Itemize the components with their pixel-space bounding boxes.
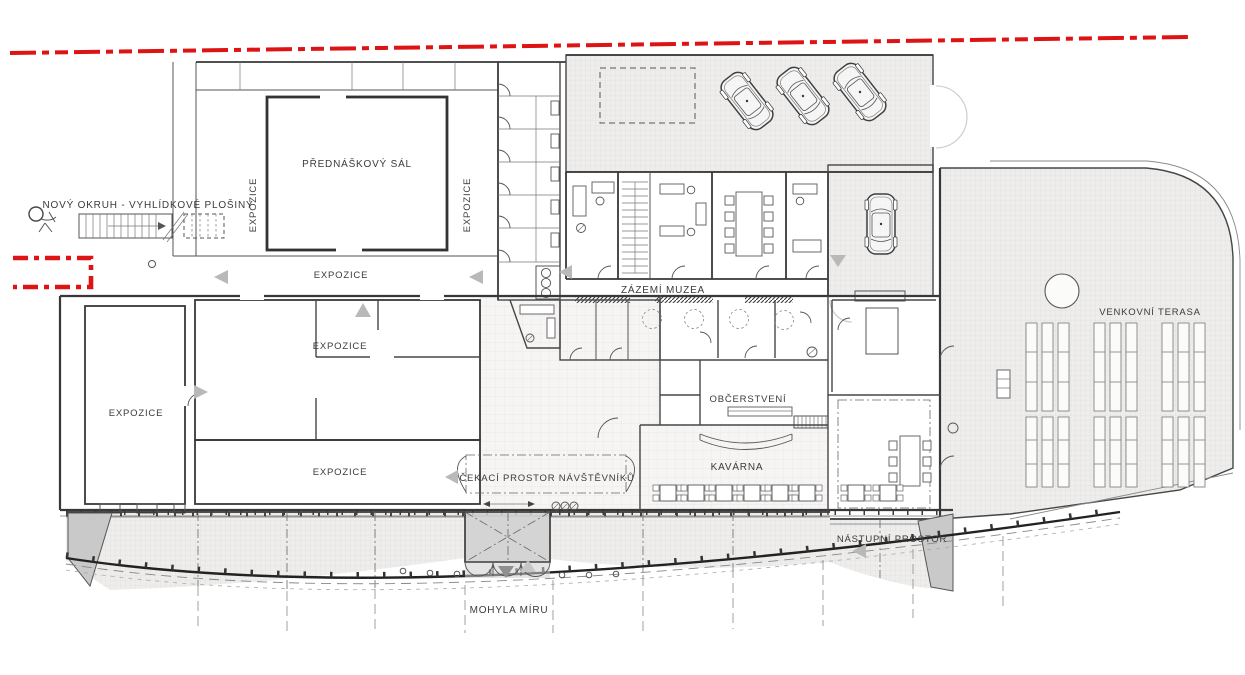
site-boundary-line-left xyxy=(13,258,91,287)
floor-plan-drawing: NOVÝ OKRUH - VYHLÍDKOVÉ PLOŠINY PŘEDNÁŠK… xyxy=(0,0,1245,675)
lounge-furniture xyxy=(866,308,898,354)
label-expozice-vertical-west: EXPOZICE xyxy=(248,178,259,232)
site-boundary-line-top xyxy=(10,37,1192,53)
column-marker xyxy=(149,261,156,268)
label-mohyla-miru: MOHYLA MÍRU xyxy=(470,603,549,616)
cafe-table xyxy=(841,485,871,501)
cafe-table xyxy=(873,485,903,501)
lecture-hall-room xyxy=(267,97,447,250)
label-prednaskovy-sal: PŘEDNÁŠKOVÝ SÁL xyxy=(302,157,412,170)
label-zazemi-muzea: ZÁZEMÍ MUZEA xyxy=(621,283,705,296)
gate-gap xyxy=(930,85,936,147)
label-expozice-vertical-east: EXPOZICE xyxy=(462,178,473,232)
label-expozice-west: EXPOZICE xyxy=(109,408,163,419)
exposition-room-center xyxy=(195,300,480,440)
gate-door-arcs xyxy=(936,86,967,148)
round-table-dashed xyxy=(730,310,749,329)
hatched-wall xyxy=(745,297,793,303)
label-expozice-south: EXPOZICE xyxy=(313,467,367,478)
entrance-vestibule xyxy=(465,501,550,578)
east-rooms xyxy=(828,300,954,508)
refreshments-block xyxy=(643,296,829,428)
label-expozice-center: EXPOZICE xyxy=(313,341,367,352)
hatched-wall xyxy=(655,297,713,303)
lecture-hall-block xyxy=(149,62,567,300)
exposition-room-west xyxy=(85,306,185,504)
round-table-dashed xyxy=(775,311,794,330)
round-table-dashed xyxy=(685,310,704,329)
museum-offices xyxy=(566,172,828,303)
office-desks xyxy=(573,182,821,252)
car-icon xyxy=(865,194,897,254)
floor-plan-canvas: NOVÝ OKRUH - VYHLÍDKOVÉ PLOŠINY PŘEDNÁŠK… xyxy=(0,0,1245,675)
viewing-platform-stairs xyxy=(29,62,224,256)
label-nastupni-prostor: NÁSTUPNÍ PROSTOR xyxy=(837,534,947,545)
label-kavarna: KAVÁRNA xyxy=(711,460,764,473)
terrace-long-tables xyxy=(1026,323,1205,487)
terrace-tree-circle xyxy=(1045,274,1079,308)
service-counter xyxy=(728,407,792,416)
stairs-direction-arrow xyxy=(158,222,166,230)
door-gap xyxy=(336,247,362,253)
dining-table xyxy=(900,436,920,486)
planter-box xyxy=(997,370,1010,398)
stairs-dashed xyxy=(184,214,224,238)
toilet-strip xyxy=(498,62,560,300)
label-cekaci-prostor: ČEKACÍ PROSTOR NÁVŠTĚVNÍKŮ xyxy=(459,472,634,484)
door-gap xyxy=(320,94,346,100)
reception-desk xyxy=(520,305,554,314)
label-novy-okruh: NOVÝ OKRUH - VYHLÍDKOVÉ PLOŠINY xyxy=(43,198,254,211)
label-venkovni-terasa: VENKOVNÍ TERASA xyxy=(1099,307,1201,318)
label-expozice-corridor: EXPOZICE xyxy=(314,270,368,281)
label-obcerstveni: OBČERSTVENÍ xyxy=(710,394,787,405)
staircase xyxy=(622,182,648,273)
wc-stall xyxy=(536,266,560,299)
meeting-room-table xyxy=(725,192,773,256)
